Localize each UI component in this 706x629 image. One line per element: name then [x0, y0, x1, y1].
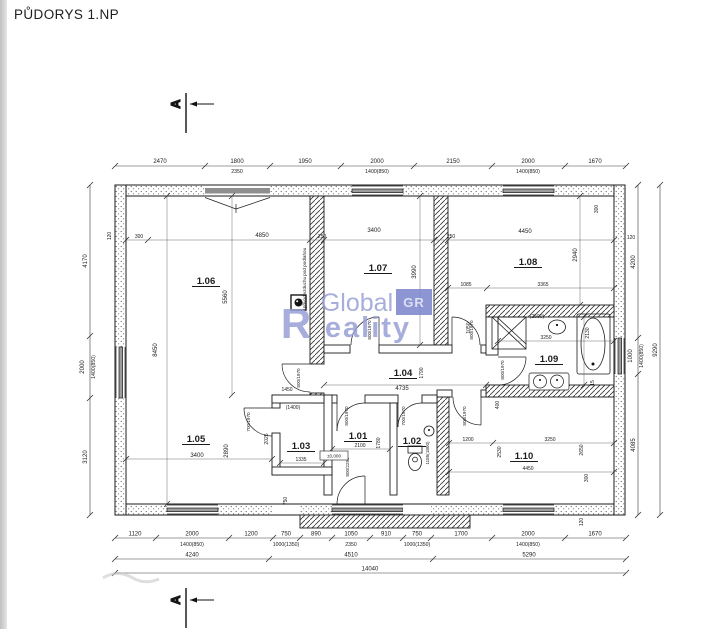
door-label-103: 700/1970 [246, 412, 251, 432]
dim-i1780: 1780 [376, 437, 382, 448]
toilet [408, 446, 422, 471]
dim-i300tr: 300 [594, 205, 600, 214]
room-label-102: 1.02 [403, 436, 422, 447]
dim-i1200: 1200 [462, 437, 473, 443]
room-label-103: 1.03 [292, 441, 311, 452]
dim-bot-5: 890 [311, 532, 322, 538]
dim-i15: 15 [590, 380, 596, 386]
room-label-104: 1.04 [394, 368, 413, 379]
watermark-initial: R [281, 300, 311, 347]
dim-bot2-2: 4510 [344, 553, 358, 559]
dim-i1185: 1185(1800) [425, 441, 430, 465]
dim-p1400: (1400) [286, 405, 301, 411]
section-cut-marker-bottom: A [168, 588, 214, 628]
dim-i2130: 2130 [585, 327, 591, 338]
porch-slab [300, 515, 470, 528]
watermark-badge-text: GR [403, 295, 425, 310]
dim-bot-8: 750 [412, 532, 423, 538]
dim-i3250bath: 3250 [540, 335, 551, 341]
dim-right-2: 1000 [628, 349, 634, 363]
door-101-porch [337, 476, 365, 504]
room-label-105: 1.05 [187, 434, 206, 445]
entrance-door-swing [205, 198, 270, 210]
dim-top-sub-3: 1400(850) [516, 169, 540, 175]
dim-i5560: 5560 [223, 290, 229, 304]
dim-bot-4: 750 [281, 532, 292, 538]
dim-i3990: 3990 [412, 265, 418, 279]
dim-bot-3: 1200 [244, 532, 258, 538]
dim-top-6: 2000 [521, 159, 535, 165]
dim-right-3: 4085 [631, 438, 637, 452]
dim-i300a: 300 [135, 234, 144, 240]
dim-right-1: 4200 [631, 255, 637, 269]
dim-bot-1: 1120 [129, 532, 143, 538]
bathtub [577, 314, 610, 374]
dim-i3250r: 3250 [544, 437, 555, 443]
wall-103-101 [324, 395, 332, 495]
room-labels: 1.06 1.07 1.08 1.09 1.04 1.05 1.03 1.01 … [182, 257, 563, 462]
dim-right-sub: 1400(850) [639, 344, 645, 368]
dim-left-3: 3120 [83, 450, 89, 464]
dim-top-1: 2470 [153, 159, 167, 165]
dim-i1085: 1085 [460, 282, 471, 288]
dim-left-2: 2000 [80, 360, 86, 374]
section-letter-top: A [168, 99, 183, 109]
dim-bot-10: 2000 [521, 532, 535, 538]
dim-i1450: 1450 [281, 387, 292, 393]
dim-bot-sub-1: 1400(850) [180, 542, 204, 548]
dim-i120l: 120 [107, 232, 113, 241]
room-label-107: 1.07 [369, 263, 388, 274]
wall-103-north [272, 395, 324, 403]
dim-bot-6: 1050 [344, 532, 358, 538]
dim-i3365: 3365 [537, 282, 548, 288]
dim-i2025: 2025 [264, 433, 270, 444]
room-label-109: 1.09 [540, 354, 559, 365]
door-label-110: 800/1970 [462, 406, 467, 426]
wall-106-107 [310, 196, 324, 364]
window-bottom-1 [167, 505, 218, 515]
dim-i1335: 1335 [295, 457, 306, 463]
dim-bot-sub-3: 2350 [345, 542, 357, 548]
wall-103-south [272, 467, 332, 475]
dim-total-height: 9290 [653, 343, 659, 357]
door-label-109: 800/1970 [500, 360, 505, 380]
dim-top-5: 2150 [446, 159, 460, 165]
dim-i4850: 4850 [255, 233, 269, 239]
dim-i2890: 2890 [224, 444, 230, 458]
dim-bot-11: 1670 [588, 532, 602, 538]
dim-i3400b: 3400 [190, 453, 204, 459]
dim-i750: 750 [283, 497, 289, 506]
dim-top-3: 1950 [298, 159, 312, 165]
corner-sink-102 [424, 426, 434, 436]
watermark-word2: eality [325, 312, 411, 344]
twin-basins [529, 373, 569, 390]
door-101 [337, 403, 365, 431]
dim-i4450t: 4450 [518, 229, 532, 235]
dim-i2100: 2100 [354, 443, 365, 449]
dim-i2940: 2940 [573, 248, 579, 262]
dim-top-7: 1670 [588, 159, 602, 165]
dim-total-width: 14040 [362, 567, 379, 573]
dim-top-sub-1: 2350 [231, 169, 243, 175]
dim-top-2: 1800 [230, 159, 244, 165]
dim-top-4: 2000 [370, 159, 384, 165]
dim-i120b: 120 [579, 518, 585, 527]
exterior-walls [115, 185, 625, 515]
dim-top-sub-2: 1400(850) [365, 169, 389, 175]
door-label-hall: 800/1970 [296, 368, 301, 388]
dim-bot-7: 910 [381, 532, 392, 538]
dim-i120r: 120 [627, 235, 636, 241]
scan-smudge-artifact [103, 574, 159, 582]
wall-108-109 [486, 305, 614, 317]
dim-i2650: 2650 [579, 444, 585, 455]
dim-i8450: 8450 [153, 343, 159, 357]
room-label-101: 1.01 [349, 431, 368, 442]
door-label-108: 800/1970 [469, 320, 474, 340]
window-bottom-2 [332, 505, 403, 515]
dim-p2500: (2500) [530, 314, 545, 320]
section-cut-marker-top: A [168, 93, 214, 133]
dim-i1790: 1790 [419, 367, 425, 378]
dim-i4735: 4735 [395, 386, 409, 392]
window-top-1 [352, 186, 403, 196]
section-letter-bottom: A [168, 595, 183, 605]
dim-bot2-3: 5290 [522, 553, 536, 559]
wall-110-west [437, 397, 449, 495]
window-top-2 [503, 186, 554, 196]
door-label-102: 700/1970 [401, 406, 406, 426]
dim-left-1: 4170 [83, 254, 89, 268]
door-bottom-2-opening [403, 505, 431, 515]
wall-107-108 [434, 196, 448, 345]
dim-i4450b: 4450 [522, 466, 533, 472]
dim-i250b: 250 [447, 234, 456, 240]
dim-bot-sub-5: 1400(850) [516, 542, 540, 548]
door-label-101: 800/1970 [344, 406, 349, 426]
window-right [615, 338, 625, 374]
window-left [116, 347, 126, 398]
floor-plan-drawing: 2470 1800 1950 2000 2150 2000 1670 2350 … [0, 0, 706, 629]
dim-i400: 400 [495, 401, 501, 410]
dim-i3400t: 3400 [367, 228, 381, 234]
washbasin-109 [549, 320, 566, 334]
dim-i300br: 300 [584, 474, 590, 483]
dim-left-sub: 1400(850) [91, 355, 97, 379]
dim-bot-sub-4: 1000(1350) [404, 542, 431, 548]
dim-i2530: 2530 [497, 446, 503, 457]
room-label-108: 1.08 [519, 257, 538, 268]
dim-bot-2: 2000 [185, 532, 199, 538]
dim-bot-9: 1700 [454, 532, 468, 538]
windows [116, 186, 625, 515]
wall-101-102 [390, 403, 397, 495]
dim-bot2-1: 4240 [185, 553, 199, 559]
level-marker: ±0,000 [327, 454, 341, 459]
room-label-106: 1.06 [197, 276, 216, 287]
door-110 [453, 397, 481, 425]
room-label-110: 1.10 [515, 451, 534, 462]
dim-i250a: 250 [318, 234, 327, 240]
dim-bot-sub-2: 1000(1350) [273, 542, 300, 548]
window-bottom-3 [503, 505, 554, 515]
